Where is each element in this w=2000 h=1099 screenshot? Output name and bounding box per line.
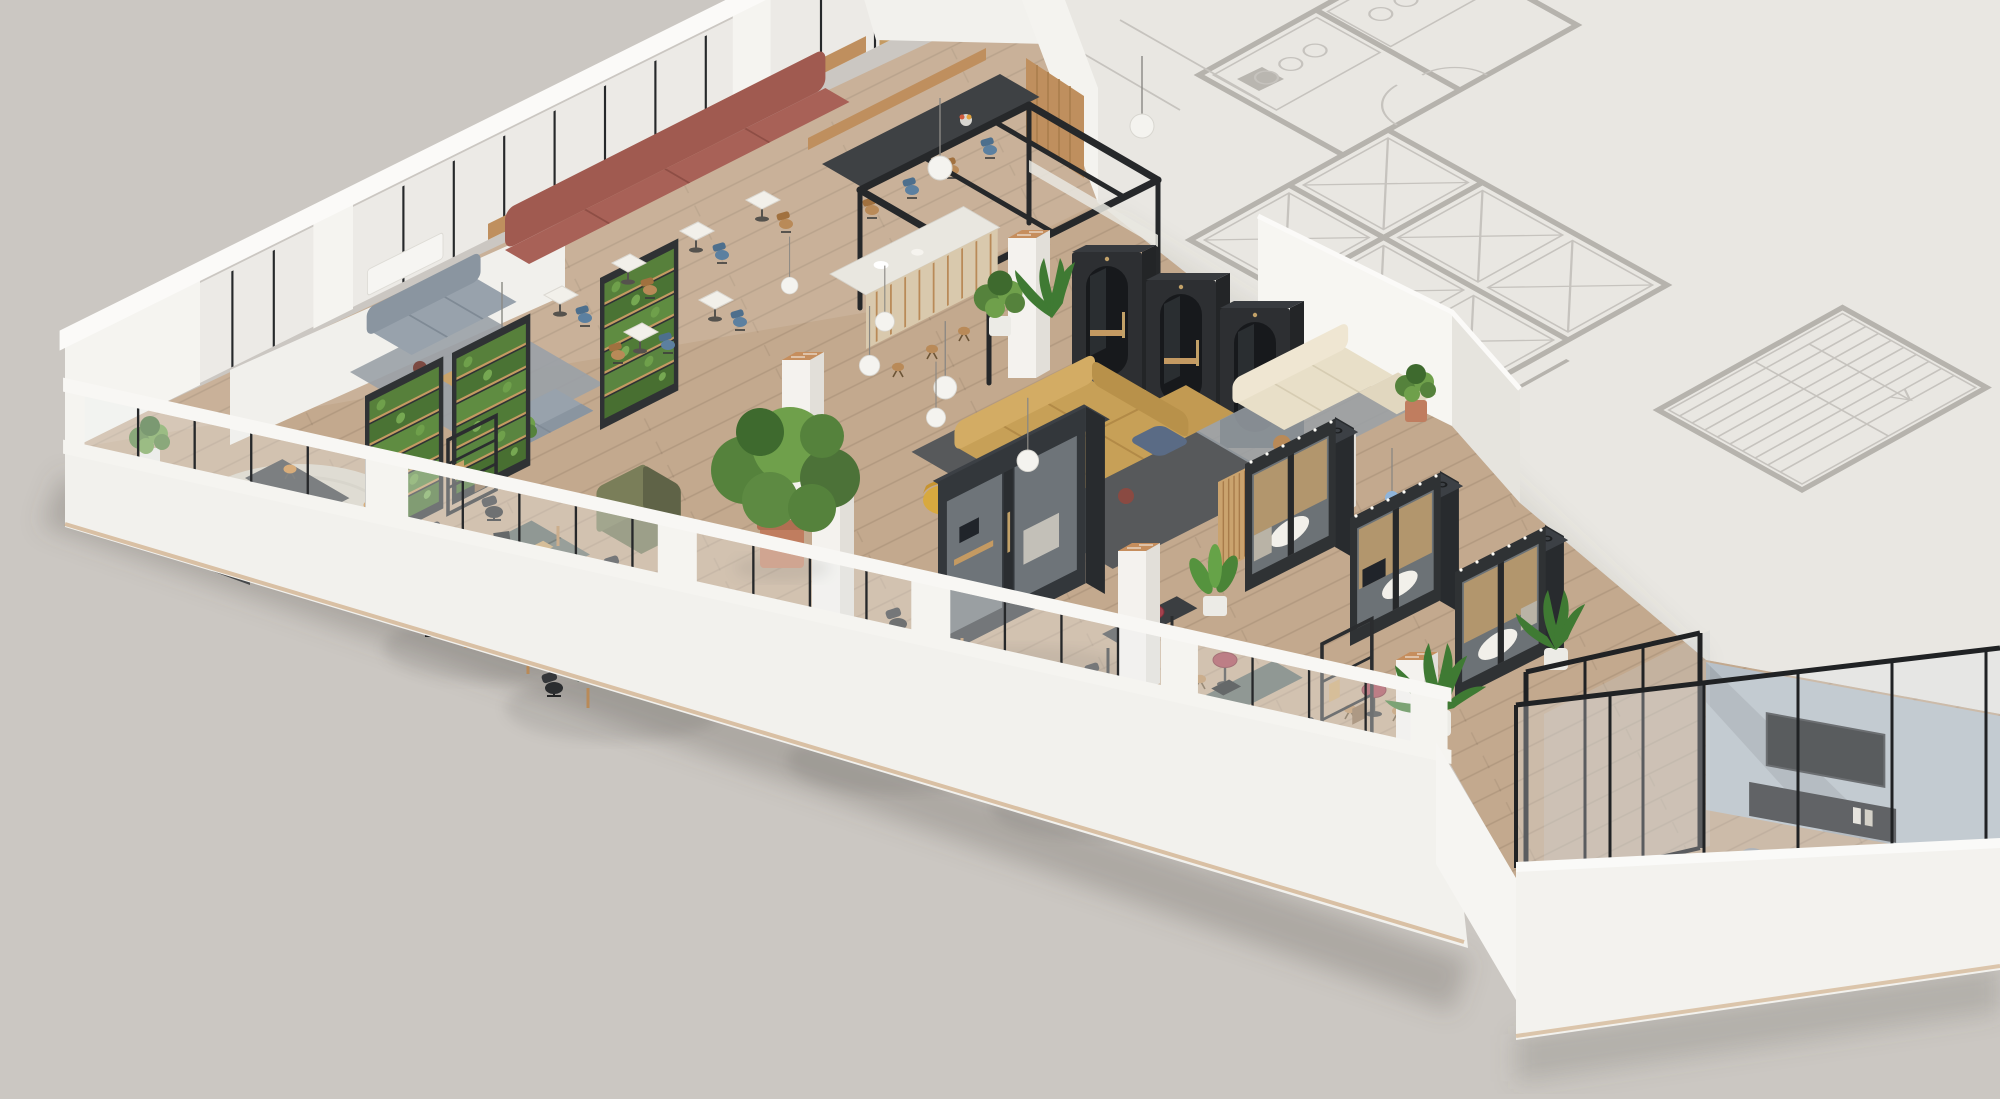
office-floor-3d-render	[0, 0, 2000, 1099]
kitchen-back-wall	[862, 0, 1048, 44]
pod-side	[1086, 407, 1105, 594]
side-table-round	[1118, 488, 1134, 504]
render-canvas	[0, 0, 2000, 1099]
